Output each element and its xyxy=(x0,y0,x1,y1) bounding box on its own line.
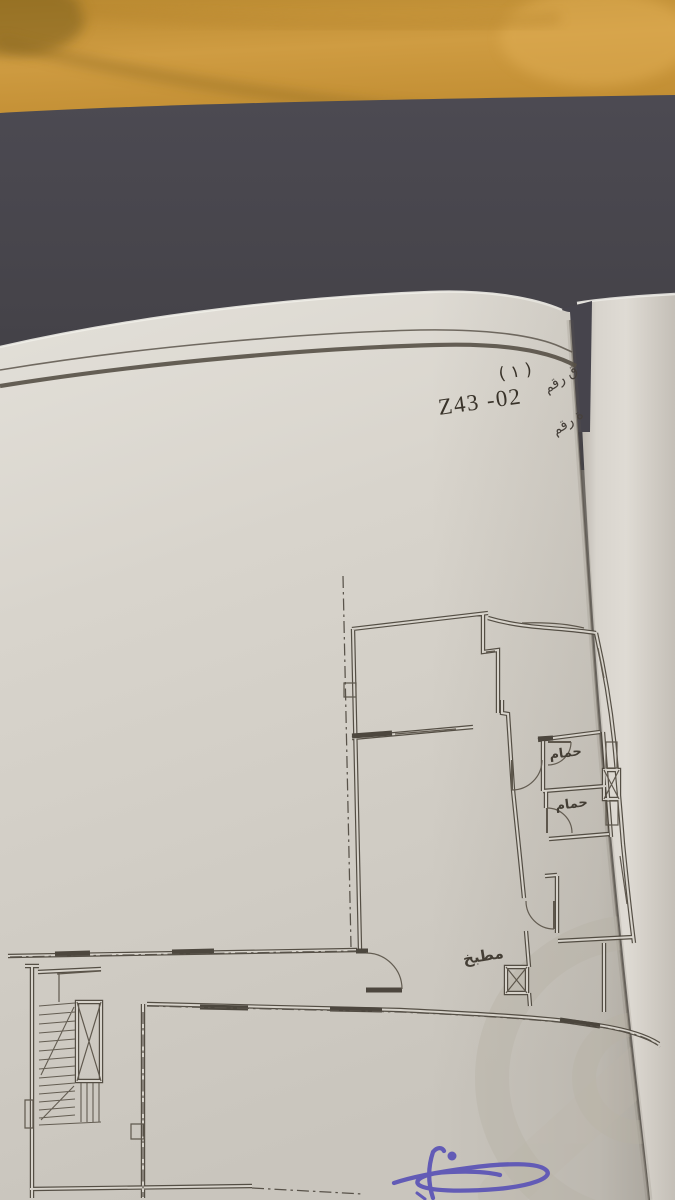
photo-of-floorplan-page: حمام حمام مطبخ ( ١ ) ق رقم Z43 -02 ة رقم xyxy=(0,0,675,1200)
signature-dot xyxy=(448,1152,457,1161)
